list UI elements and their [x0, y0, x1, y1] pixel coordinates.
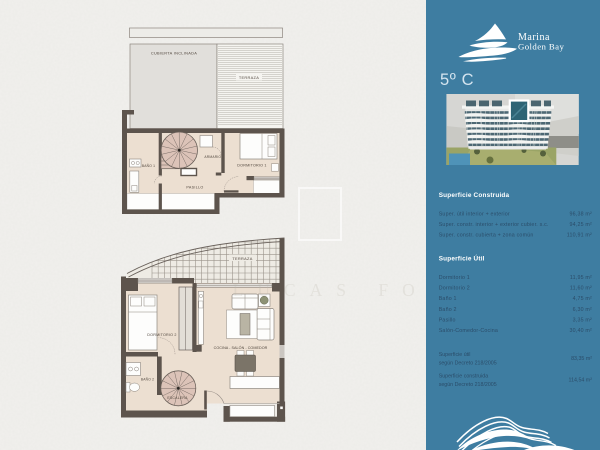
svg-text:3,35 m²: 3,35 m² [573, 317, 592, 323]
svg-text:30,40 m²: 30,40 m² [569, 328, 592, 334]
svg-text:BAÑO 2: BAÑO 2 [141, 376, 154, 381]
svg-text:según Decreto 218/2005: según Decreto 218/2005 [439, 382, 497, 388]
svg-text:Superficie Construida: Superficie Construida [439, 192, 510, 199]
svg-text:114,54 m²: 114,54 m² [569, 378, 593, 384]
svg-text:Golden Bay: Golden Bay [518, 42, 564, 52]
svg-text:Superficie Útil: Superficie Útil [439, 254, 485, 263]
svg-text:96,38 m²: 96,38 m² [569, 212, 592, 218]
svg-text:TERRAZA: TERRAZA [239, 75, 259, 80]
svg-text:11,60 m²: 11,60 m² [570, 286, 592, 292]
svg-text:ESCALERA: ESCALERA [167, 396, 188, 400]
svg-text:DORMITORIO 1: DORMITORIO 1 [237, 164, 266, 168]
svg-text:Superficie útil: Superficie útil [439, 352, 471, 358]
svg-text:BAÑO 1: BAÑO 1 [142, 163, 155, 168]
svg-text:94,25 m²: 94,25 m² [569, 222, 592, 228]
svg-text:Pasillo: Pasillo [439, 317, 456, 323]
svg-text:Super. útil interior + exterio: Super. útil interior + exterior [439, 212, 510, 218]
svg-text:CUBIERTA INCLINADA: CUBIERTA INCLINADA [151, 51, 197, 56]
svg-text:ARMARIO: ARMARIO [204, 155, 221, 159]
svg-text:LUCAS FOX: LUCAS FOX [233, 280, 456, 300]
svg-text:Dormitorio 2: Dormitorio 2 [439, 286, 470, 292]
svg-text:Super. constr. interior + exte: Super. constr. interior + exterior cubie… [439, 222, 549, 228]
svg-text:110,91 m²: 110,91 m² [567, 232, 592, 238]
svg-text:11,95 m²: 11,95 m² [570, 275, 592, 281]
svg-text:PASILLO: PASILLO [186, 185, 203, 189]
svg-text:5º C: 5º C [440, 71, 474, 89]
svg-text:COCINA - SALÓN - COMEDOR: COCINA - SALÓN - COMEDOR [214, 345, 268, 350]
svg-text:Baño 1: Baño 1 [439, 296, 457, 302]
svg-text:DORMITORIO 2: DORMITORIO 2 [147, 333, 176, 337]
svg-text:83,35 m²: 83,35 m² [571, 356, 592, 362]
svg-text:Salón-Comedor-Cocina: Salón-Comedor-Cocina [439, 328, 498, 334]
svg-text:Superficie construida: Superficie construida [439, 374, 489, 380]
svg-text:Dormitorio 1: Dormitorio 1 [439, 275, 470, 281]
svg-text:Baño 2: Baño 2 [439, 307, 457, 313]
svg-text:4,75 m²: 4,75 m² [573, 296, 592, 302]
svg-text:Super. constr. cubierta + zona: Super. constr. cubierta + zona común [439, 232, 534, 238]
svg-text:6,30 m²: 6,30 m² [573, 307, 592, 313]
svg-text:según Decreto 218/2005: según Decreto 218/2005 [439, 361, 497, 367]
svg-text:TERRAZA: TERRAZA [232, 256, 252, 261]
